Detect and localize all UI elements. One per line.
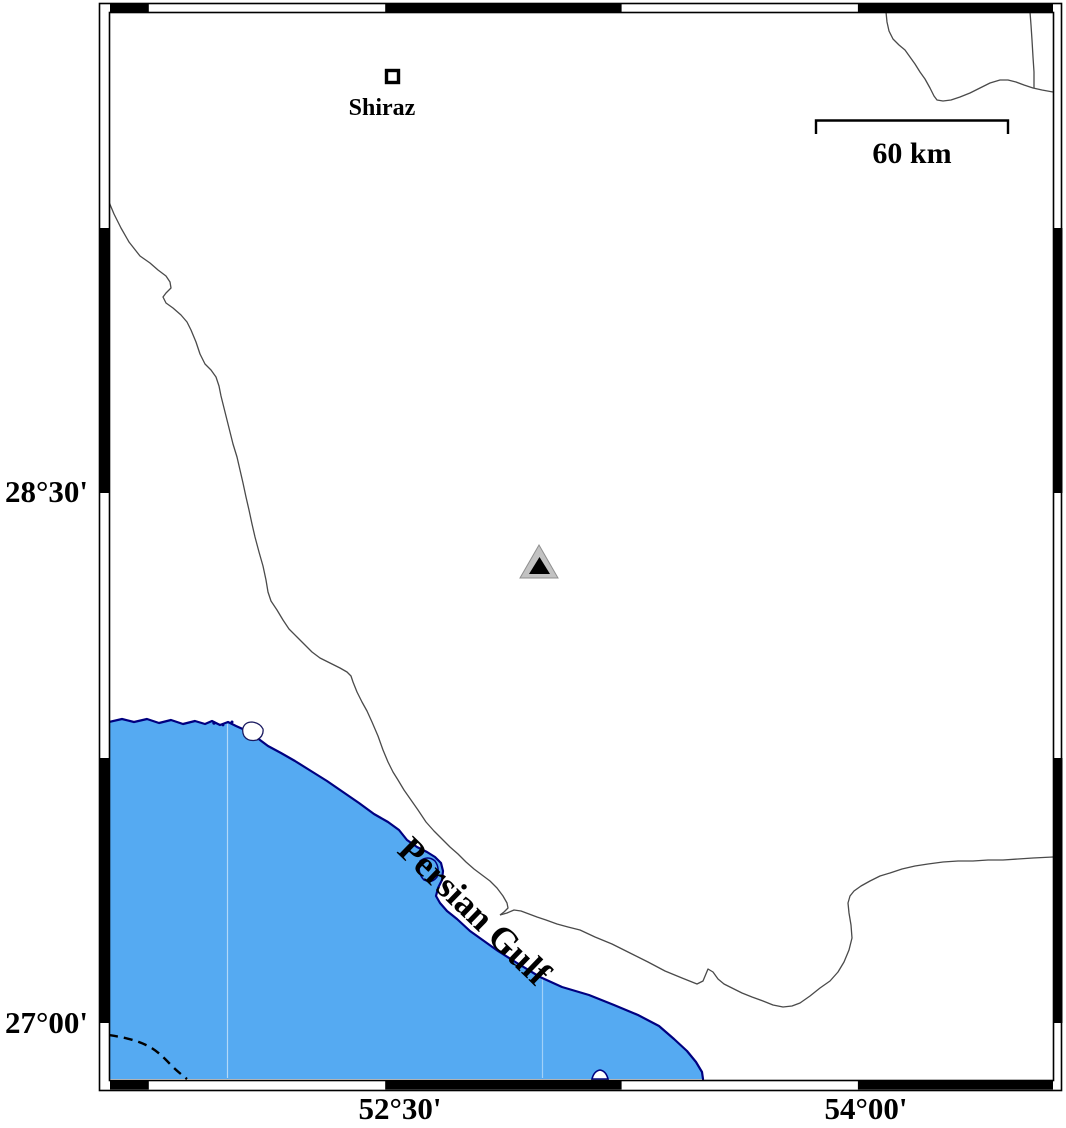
map-figure: Persian Gulf Shiraz 60 km 28°30' 27°00' … bbox=[0, 0, 1066, 1128]
lat-label-2700: 27°00' bbox=[5, 1005, 88, 1040]
lon-label-5230: 52°30' bbox=[358, 1091, 441, 1126]
boundary-line-southeast bbox=[500, 857, 1053, 1007]
frame-block bbox=[858, 4, 1053, 13]
frame-block bbox=[385, 1081, 621, 1090]
frame-block bbox=[858, 1081, 1053, 1090]
boundary-line-vertical bbox=[1030, 12, 1034, 88]
islet bbox=[222, 724, 225, 727]
islet bbox=[231, 721, 234, 724]
map-interior: Persian Gulf Shiraz 60 km bbox=[109, 12, 1053, 1079]
frame-block bbox=[110, 1081, 149, 1090]
city-label: Shiraz bbox=[349, 95, 416, 121]
coastal-island bbox=[243, 722, 263, 741]
scale-bar bbox=[816, 121, 1008, 135]
frame-block bbox=[100, 228, 110, 493]
frame-block bbox=[110, 4, 149, 13]
frame-block bbox=[385, 4, 621, 13]
boundary-line-northeast bbox=[886, 12, 1053, 101]
islet bbox=[212, 721, 215, 724]
city-marker-square-icon bbox=[387, 71, 399, 83]
lat-label-2830: 28°30' bbox=[5, 474, 88, 509]
scale-bar-label: 60 km bbox=[872, 137, 951, 170]
map-canvas: Persian Gulf Shiraz 60 km 28°30' 27°00' … bbox=[0, 0, 1066, 1128]
frame-block bbox=[100, 758, 110, 1023]
persian-gulf-water bbox=[109, 719, 703, 1079]
lon-label-5400: 54°00' bbox=[824, 1091, 907, 1126]
